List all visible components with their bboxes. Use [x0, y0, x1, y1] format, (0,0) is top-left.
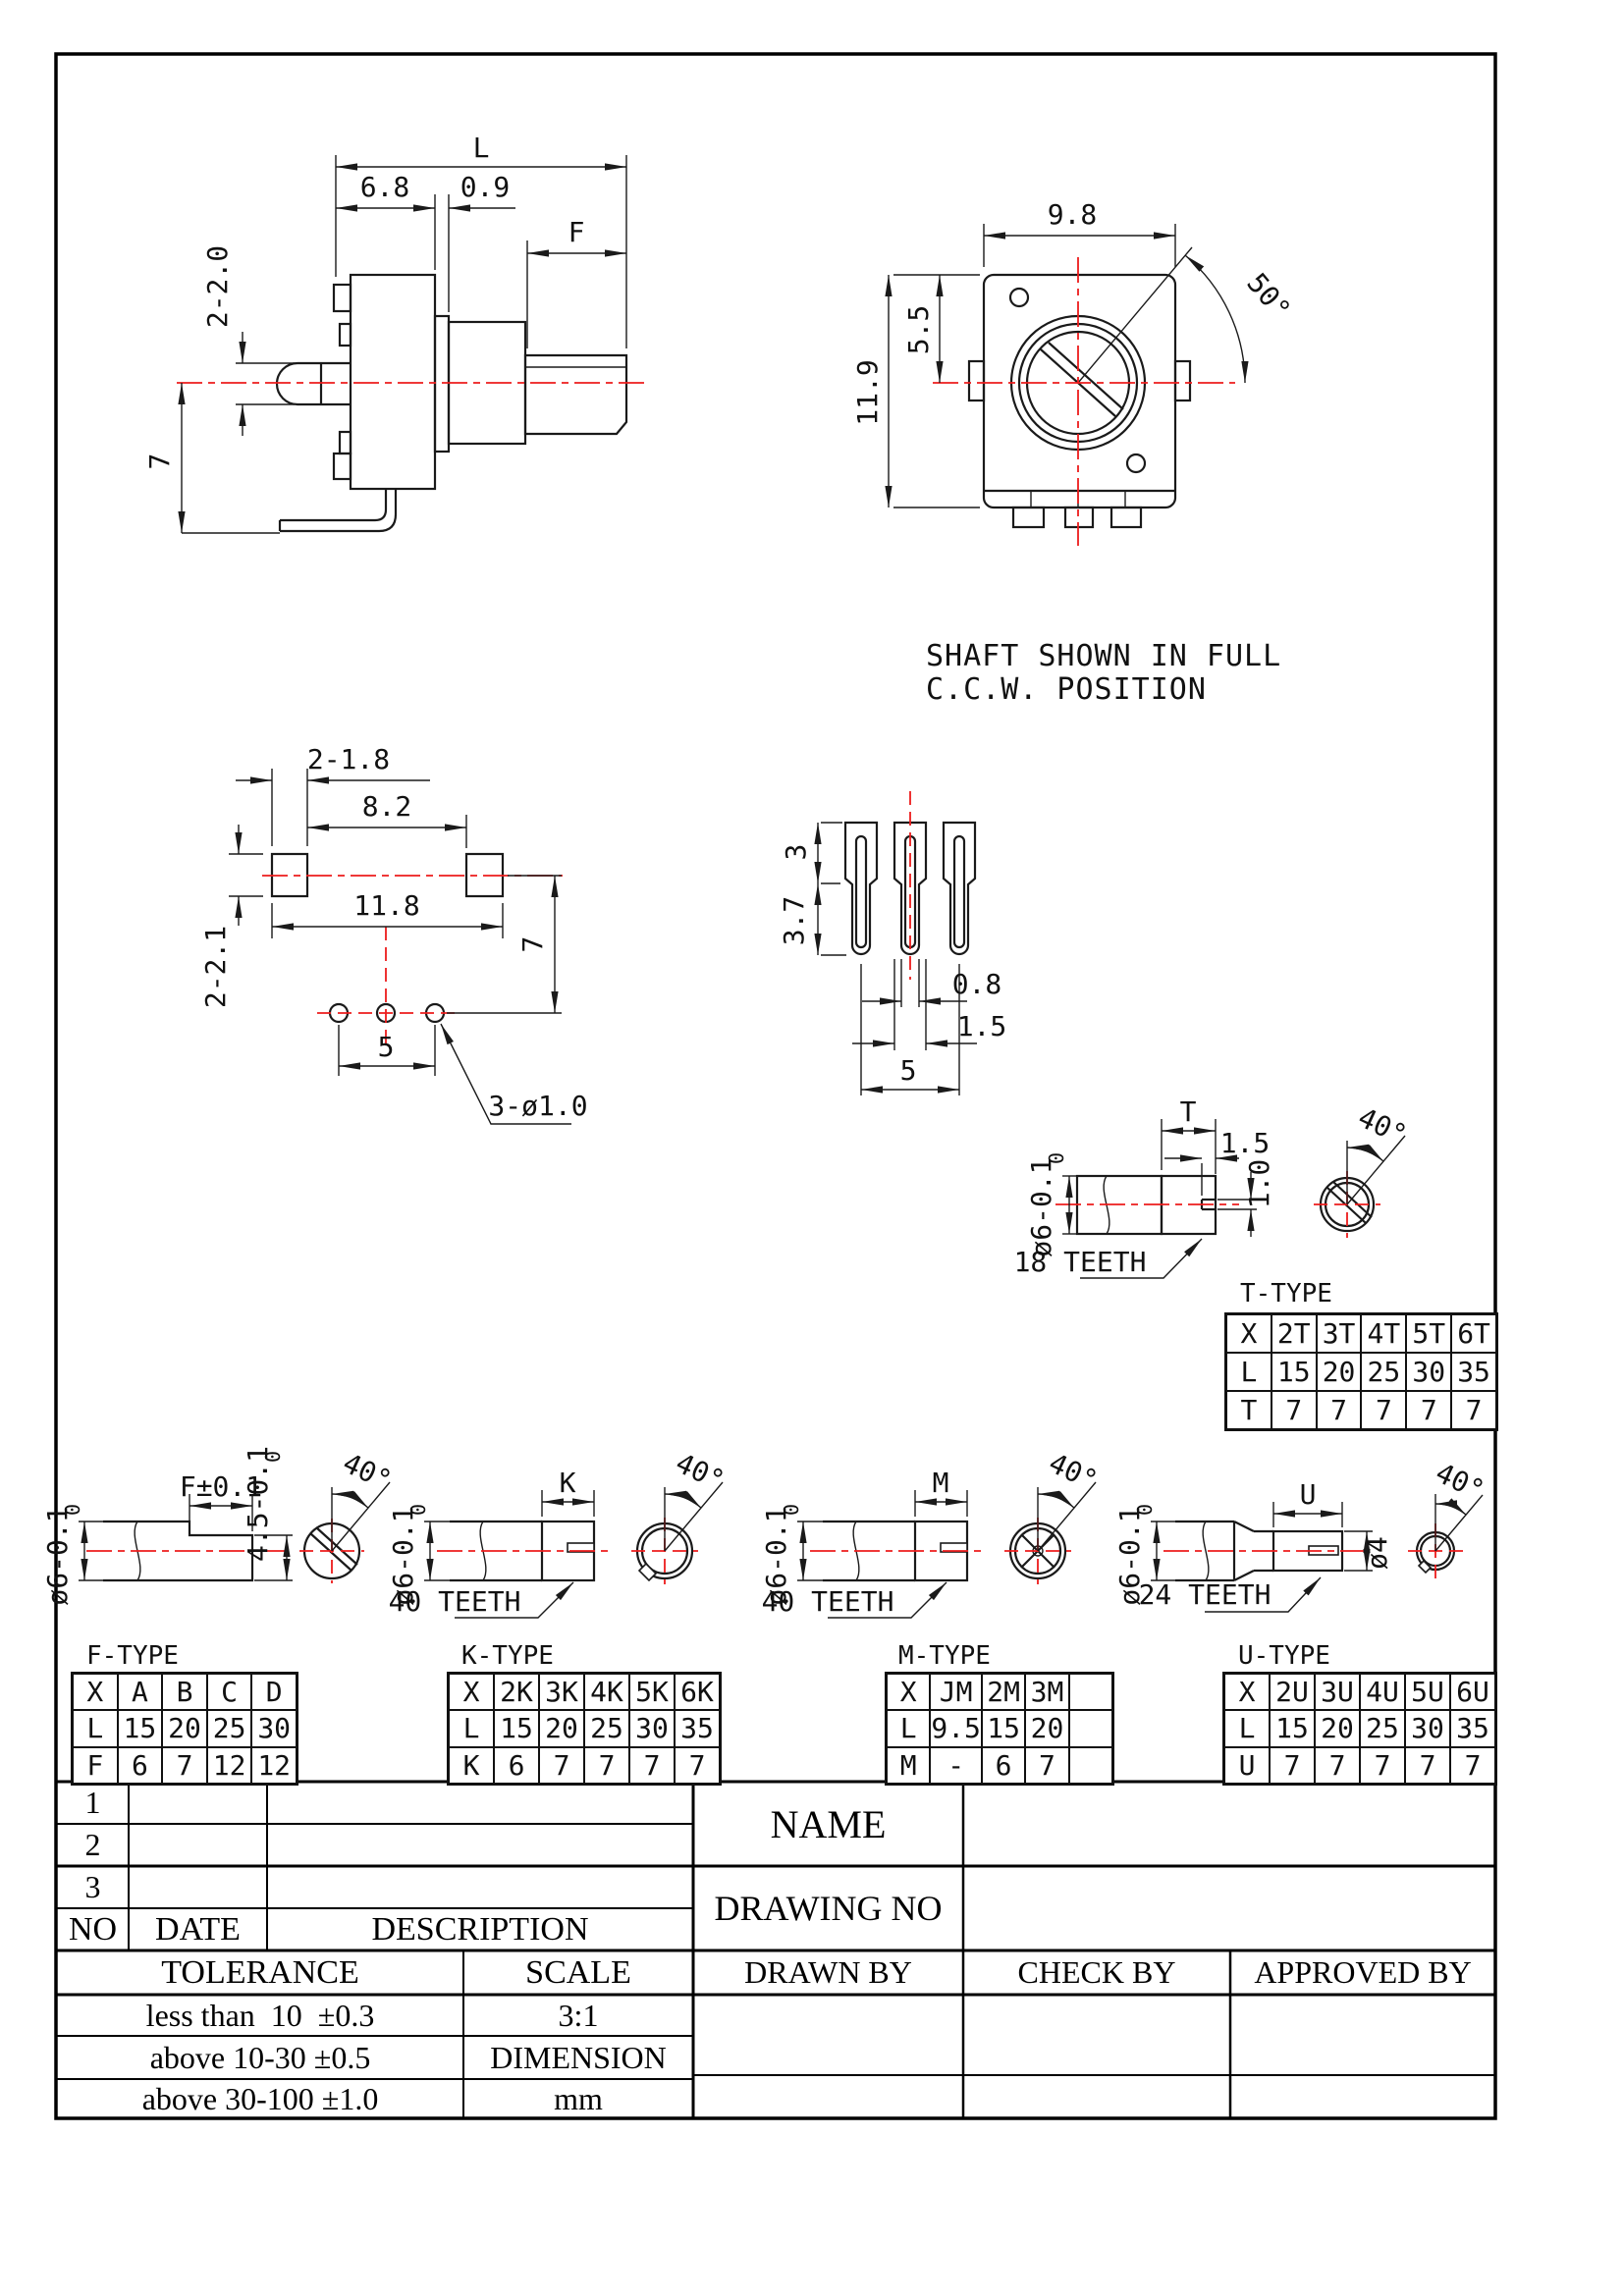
teeth-label: 40 TEETH: [389, 1585, 521, 1618]
pin-detail-view: 3 3.7 0.8 1.5 5: [778, 791, 1006, 1095]
table-title-u: U-TYPE: [1238, 1641, 1330, 1671]
angle-label: 40°: [1353, 1101, 1412, 1151]
teeth-label: 18 TEETH: [1014, 1246, 1147, 1278]
dim-label: 9.8: [1048, 198, 1098, 231]
table-cell: 7: [1270, 1747, 1315, 1784]
table-title-m: M-TYPE: [898, 1641, 991, 1671]
dim-label: 5.5: [902, 305, 935, 355]
table-cell: 7: [584, 1747, 629, 1784]
table-cell: L: [449, 1710, 494, 1746]
tolerance-label: 0: [1133, 1504, 1157, 1516]
table-cell: U: [1224, 1747, 1270, 1784]
table-cell: 5K: [629, 1674, 675, 1710]
unit-value: mm: [463, 2079, 693, 2118]
approved-by-header: APPROVED BY: [1230, 1950, 1495, 1995]
dim-label: M: [933, 1467, 949, 1499]
table-cell: -: [930, 1747, 982, 1784]
dim-label: T: [1180, 1095, 1197, 1128]
tolerance-label: 0: [406, 1504, 430, 1516]
drawn-by-header: DRAWN BY: [693, 1950, 963, 1995]
table-cell: 30: [1406, 1353, 1451, 1391]
dim-label: F: [568, 216, 585, 248]
table-cell: L: [887, 1710, 930, 1746]
t-type-table: X2T3T4T5T6TL1520253035T77777: [1224, 1312, 1498, 1431]
table-cell: 4T: [1361, 1314, 1406, 1353]
table-cell: 15: [982, 1710, 1025, 1746]
table-cell: L: [73, 1710, 118, 1746]
table-cell: 15: [1270, 1710, 1315, 1746]
dim-label: 0.9: [460, 171, 511, 203]
date-header: DATE: [129, 1908, 267, 1950]
teeth-label: 24 TEETH: [1139, 1578, 1271, 1611]
table-cell: D: [251, 1674, 297, 1710]
angle-label: 40°: [1044, 1447, 1103, 1497]
table-cell: 3M: [1025, 1674, 1068, 1710]
scale-header: SCALE: [463, 1950, 693, 1995]
table-cell: 6: [982, 1747, 1025, 1784]
scale-value: 3:1: [463, 1995, 693, 2036]
table-cell: 4U: [1360, 1674, 1405, 1710]
table-cell: 20: [1025, 1710, 1068, 1746]
table-cell: 6K: [675, 1674, 720, 1710]
table-cell: 2M: [982, 1674, 1025, 1710]
table-cell: 12: [207, 1747, 252, 1784]
table-cell: X: [887, 1674, 930, 1710]
table-cell: 15: [1271, 1353, 1317, 1391]
dim-label: 8.2: [362, 790, 412, 823]
dim-label: 2-2.0: [201, 245, 234, 328]
table-cell: 35: [675, 1710, 720, 1746]
table-cell: C: [207, 1674, 252, 1710]
table-cell: 6U: [1450, 1674, 1495, 1710]
table-cell: 12: [251, 1747, 297, 1784]
table-cell: 7: [1360, 1747, 1405, 1784]
tolerance-label: 0: [261, 1451, 285, 1463]
table-cell: 30: [1405, 1710, 1450, 1746]
table-cell: [1069, 1747, 1112, 1784]
table-cell: 6: [494, 1747, 539, 1784]
u-type-shaft-view: U ø4 ø6-0.1 0 24 TEETH 40°: [1113, 1457, 1489, 1612]
teeth-label: 40 TEETH: [762, 1585, 894, 1618]
table-cell: 25: [1360, 1710, 1405, 1746]
table-cell: 7: [1405, 1747, 1450, 1784]
table-cell: JM: [930, 1674, 982, 1710]
angle-label: 40°: [1431, 1457, 1489, 1507]
table-cell: 7: [539, 1747, 584, 1784]
table-cell: X: [73, 1674, 118, 1710]
tolerance-label: 0: [1045, 1152, 1068, 1164]
table-cell: M: [887, 1747, 930, 1784]
table-cell: 15: [118, 1710, 163, 1746]
angle-label: 40°: [338, 1447, 397, 1497]
table-cell: X: [449, 1674, 494, 1710]
dim-label: 3.7: [778, 896, 810, 946]
table-cell: 30: [629, 1710, 675, 1746]
m-type-table: XJM2M3ML9.51520M-67: [885, 1672, 1114, 1786]
dim-label: 11.9: [851, 359, 884, 425]
revision-row-number: 1: [57, 1782, 129, 1824]
dim-label: 5: [900, 1054, 917, 1087]
tolerance-row: less than 10 ±0.3: [57, 1995, 463, 2036]
table-cell: X: [1224, 1674, 1270, 1710]
table-cell: B: [162, 1674, 207, 1710]
no-header: NO: [57, 1908, 129, 1950]
table-cell: K: [449, 1747, 494, 1784]
table-cell: 35: [1450, 1710, 1495, 1746]
table-cell: 7: [1361, 1391, 1406, 1429]
k-type-table: X2K3K4K5K6KL1520253035K67777: [447, 1672, 722, 1786]
table-cell: 25: [584, 1710, 629, 1746]
table-cell: 20: [1315, 1710, 1360, 1746]
description-header: DESCRIPTION: [267, 1908, 693, 1950]
table-title-k: K-TYPE: [461, 1641, 554, 1671]
tolerance-label: 0: [61, 1504, 84, 1516]
t-type-shaft-view: T 1.5 1.0 ø6-0.1 0 18 TEETH 40°: [1014, 1095, 1412, 1278]
table-cell: 7: [675, 1747, 720, 1784]
front-view: 9.8 11.9 5.5 50°: [851, 198, 1297, 546]
table-cell: T: [1226, 1391, 1271, 1429]
m-type-shaft-view: M ø6-0.1 0 40 TEETH 40°: [760, 1447, 1103, 1618]
table-cell: 3T: [1317, 1314, 1362, 1353]
table-cell: [1069, 1710, 1112, 1746]
f-type-table: XABCDL15202530F671212: [71, 1672, 298, 1786]
f-type-shaft-view: F±0.1 4.5-0.1 0 ø6-0.1 0 40°: [41, 1446, 397, 1606]
dim-label: U: [1300, 1478, 1317, 1511]
dim-label: 1.5: [957, 1010, 1007, 1042]
dim-label: 1.5: [1220, 1127, 1271, 1159]
note-line-1: SHAFT SHOWN IN FULL: [926, 639, 1281, 673]
dim-label: 5: [378, 1031, 395, 1063]
table-cell: 7: [629, 1747, 675, 1784]
table-cell: X: [1226, 1314, 1271, 1353]
note-line-2: C.C.W. POSITION: [926, 672, 1207, 707]
table-cell: 5U: [1405, 1674, 1450, 1710]
dim-label: ø6-0.1: [41, 1506, 74, 1605]
table-cell: 2T: [1271, 1314, 1317, 1353]
table-cell: 25: [207, 1710, 252, 1746]
k-type-shaft-view: K ø6-0.1 0 40 TEETH 40°: [387, 1447, 730, 1618]
dim-label: 2-1.8: [307, 743, 390, 775]
u-type-table: X2U3U4U5U6UL1520253035U77777: [1222, 1672, 1497, 1786]
angle-label: 40°: [671, 1447, 730, 1497]
table-cell: 30: [251, 1710, 297, 1746]
table-cell: 5T: [1406, 1314, 1451, 1353]
name-header: NAME: [693, 1782, 963, 1866]
table-cell: L: [1226, 1353, 1271, 1391]
dim-label: 11.8: [353, 889, 419, 922]
table-cell: 25: [1361, 1353, 1406, 1391]
dim-label: 7: [516, 936, 549, 953]
dim-label: 2-2.1: [199, 926, 232, 1008]
table-cell: 7: [1315, 1747, 1360, 1784]
dim-label: ø4: [1361, 1536, 1393, 1570]
tolerance-row: above 10-30 ±0.5: [57, 2036, 463, 2079]
table-cell: 7: [162, 1747, 207, 1784]
revision-row-number: 3: [57, 1866, 129, 1908]
dimension-header: DIMENSION: [463, 2036, 693, 2079]
dim-label: 7: [143, 454, 176, 470]
dim-label: ø6-0.1: [1025, 1157, 1057, 1256]
table-cell: 2U: [1270, 1674, 1315, 1710]
drawing-no-header: DRAWING NO: [693, 1866, 963, 1950]
table-cell: 3U: [1315, 1674, 1360, 1710]
side-view: L 6.8 0.9 F 2-2.0 7: [143, 132, 648, 533]
table-cell: 7: [1317, 1391, 1362, 1429]
table-cell: 9.5: [930, 1710, 982, 1746]
table-cell: 2K: [494, 1674, 539, 1710]
check-by-header: CHECK BY: [963, 1950, 1230, 1995]
bottom-view: 2-1.8 8.2 11.8 2-2.1 7 5 3-ø1.0: [199, 743, 588, 1124]
table-cell: 20: [162, 1710, 207, 1746]
tolerance-label: 0: [780, 1504, 803, 1516]
table-cell: 7: [1025, 1747, 1068, 1784]
table-cell: 7: [1451, 1391, 1496, 1429]
dim-label: K: [560, 1467, 576, 1499]
table-cell: A: [118, 1674, 163, 1710]
drawing-sheet: L 6.8 0.9 F 2-2.0 7 9: [0, 0, 1623, 2296]
dim-label: 1.0: [1243, 1159, 1275, 1209]
table-cell: [1069, 1674, 1112, 1710]
tolerance-header: TOLERANCE: [57, 1950, 463, 1995]
table-cell: 15: [494, 1710, 539, 1746]
table-cell: 3K: [539, 1674, 584, 1710]
table-cell: 6: [118, 1747, 163, 1784]
table-cell: 7: [1406, 1391, 1451, 1429]
table-cell: 7: [1271, 1391, 1317, 1429]
revision-row-number: 2: [57, 1824, 129, 1866]
dim-label: 6.8: [360, 171, 410, 203]
table-title-f: F-TYPE: [86, 1641, 179, 1671]
table-title-t: T-TYPE: [1240, 1279, 1332, 1308]
table-cell: 7: [1450, 1747, 1495, 1784]
table-cell: 4K: [584, 1674, 629, 1710]
dim-label: L: [473, 132, 490, 164]
angle-label: 50°: [1240, 267, 1297, 326]
dim-label: 0.8: [952, 968, 1002, 1000]
dim-label: 3-ø1.0: [488, 1090, 587, 1122]
table-cell: F: [73, 1747, 118, 1784]
table-cell: 35: [1451, 1353, 1496, 1391]
table-cell: 6T: [1451, 1314, 1496, 1353]
table-cell: 20: [1317, 1353, 1362, 1391]
tolerance-row: above 30-100 ±1.0: [57, 2079, 463, 2118]
table-cell: 20: [539, 1710, 584, 1746]
dim-label: 3: [780, 844, 812, 861]
table-cell: L: [1224, 1710, 1270, 1746]
